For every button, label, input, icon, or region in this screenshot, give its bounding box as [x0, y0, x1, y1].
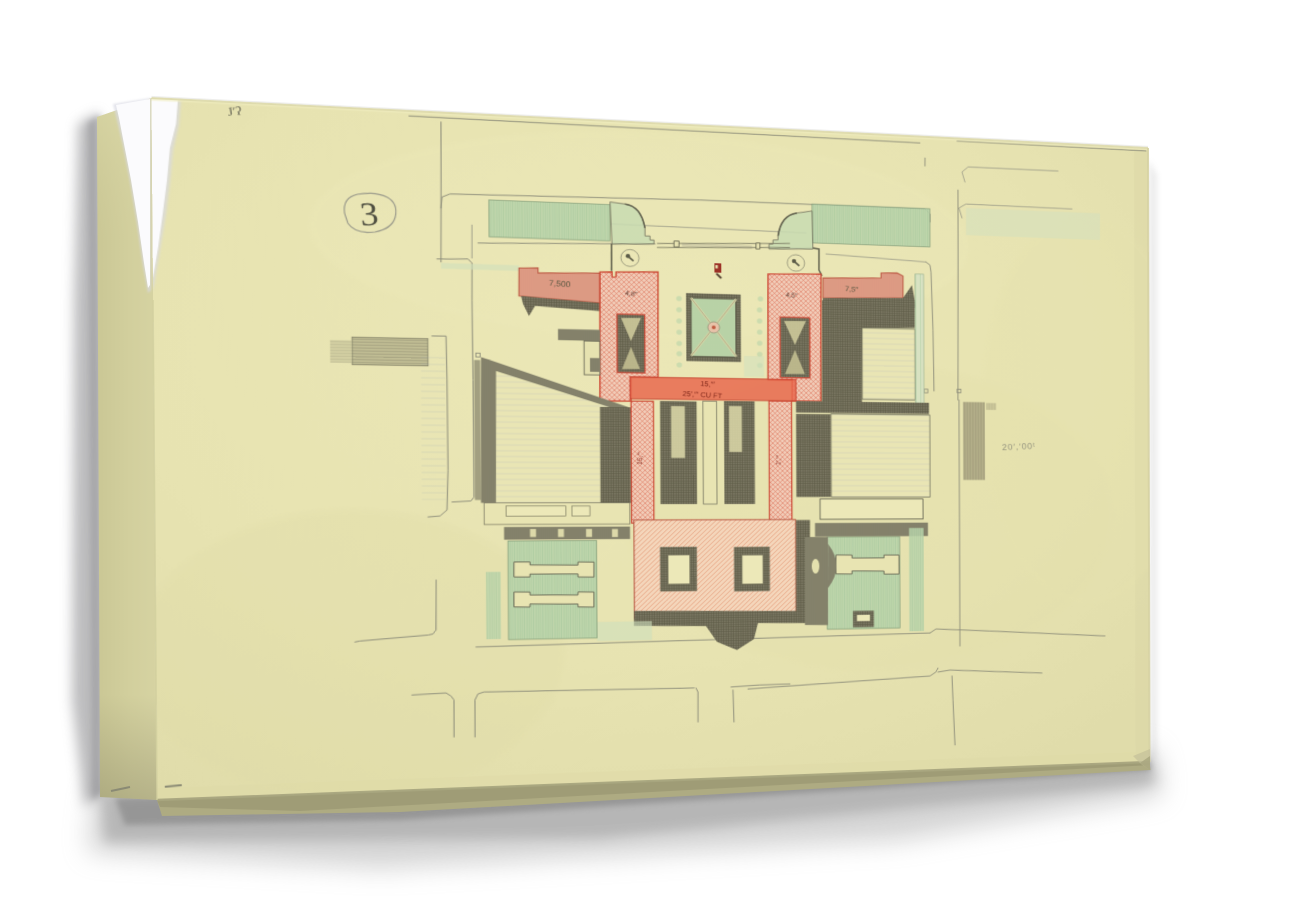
- svg-text:4,5′′: 4,5′′: [786, 291, 799, 300]
- svg-text:20′,′00ᵗ: 20′,′00ᵗ: [1002, 442, 1036, 453]
- svg-text:1′,′′′: 1′,′′′: [774, 454, 783, 465]
- svg-text:4,8′′: 4,8′′: [625, 289, 638, 298]
- svg-text:15,′′′: 15,′′′: [700, 380, 715, 389]
- svg-text:15,′′′: 15,′′′: [635, 451, 644, 465]
- svg-text:7,5′′: 7,5′′: [845, 284, 859, 293]
- svg-text:Jʹʔ: Jʹʔ: [227, 104, 243, 119]
- svg-text:3: 3: [358, 195, 380, 233]
- svg-text:7,500: 7,500: [549, 279, 571, 289]
